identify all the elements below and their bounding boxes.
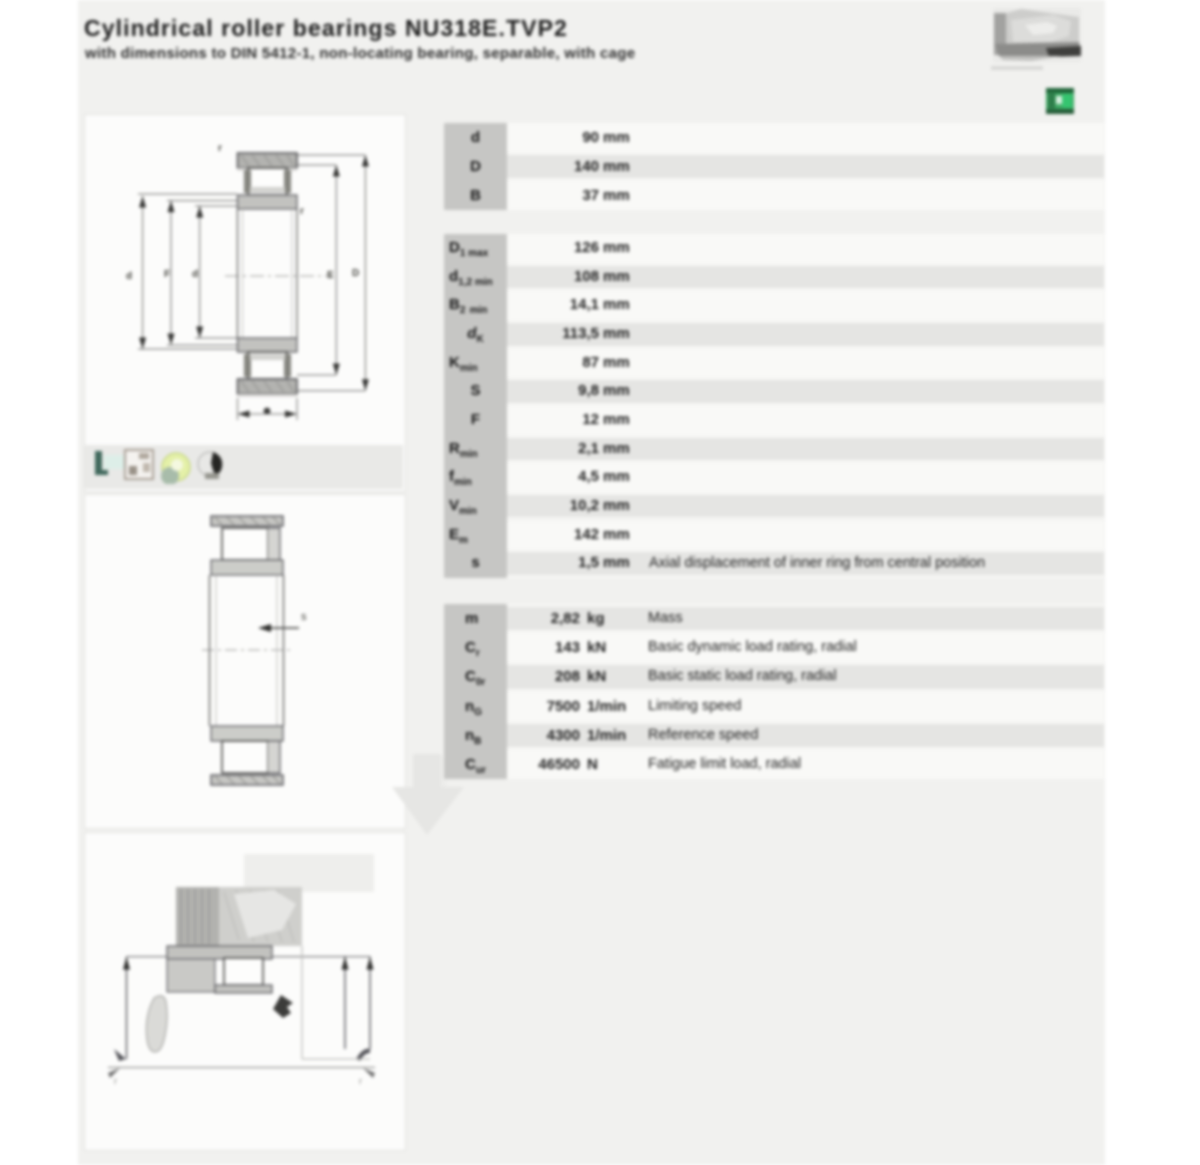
- svg-text:F: F: [164, 269, 170, 280]
- svg-text:r: r: [359, 1076, 362, 1086]
- svg-text:r: r: [218, 143, 222, 154]
- svg-text:s: s: [301, 611, 307, 623]
- svg-text:d: d: [192, 269, 198, 280]
- svg-text:D: D: [352, 268, 359, 279]
- svg-text:r: r: [300, 206, 304, 217]
- svg-text:d: d: [126, 271, 132, 282]
- svg-text:r: r: [114, 1076, 117, 1086]
